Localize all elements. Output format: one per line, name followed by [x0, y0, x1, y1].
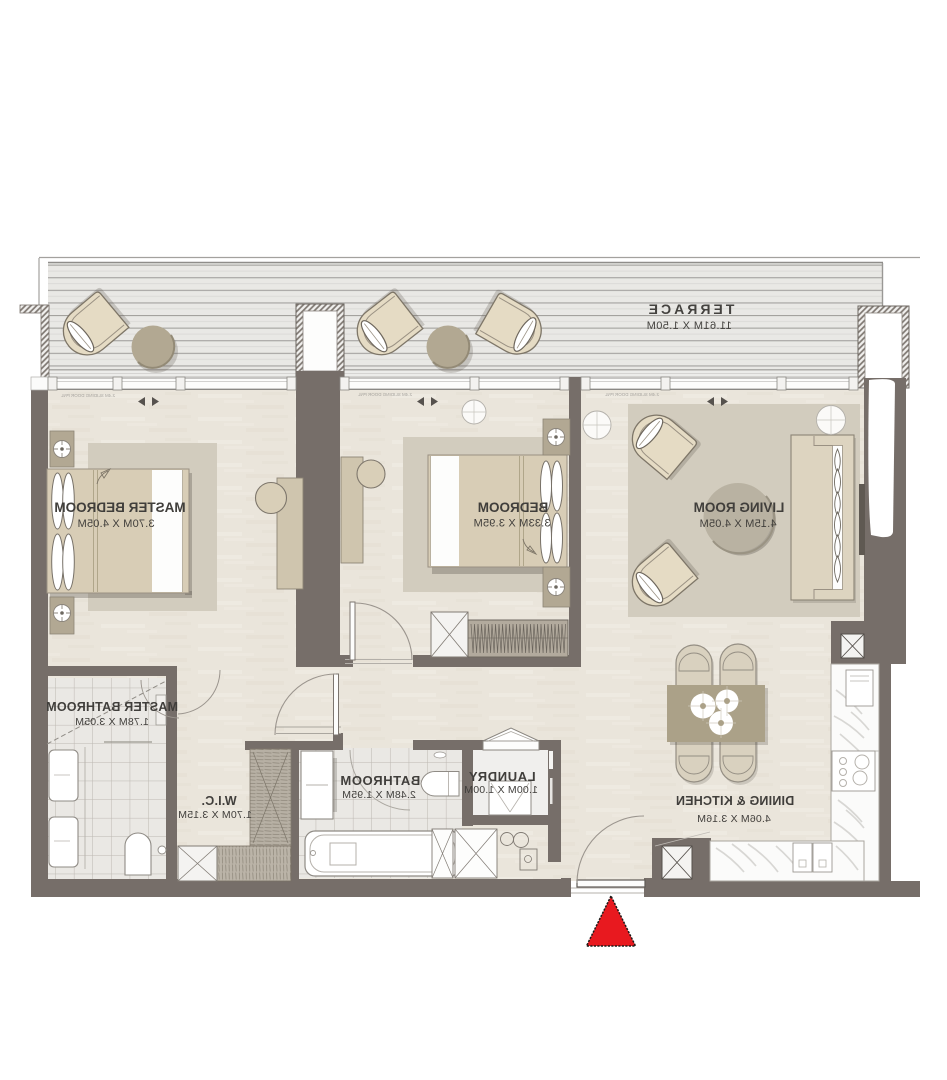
svg-text:DINING & KITCHEN: DINING & KITCHEN: [676, 794, 794, 808]
svg-text:1.78M X 3.05M: 1.78M X 3.05M: [75, 716, 149, 728]
svg-text:BEDROOM: BEDROOM: [478, 500, 549, 515]
svg-text:2.4M SLIDING DOOR PNL: 2.4M SLIDING DOOR PNL: [357, 392, 412, 397]
svg-text:4.15M X 4.05M: 4.15M X 4.05M: [699, 518, 776, 530]
svg-text:W.I.C.: W.I.C.: [201, 794, 236, 808]
svg-text:2.4M SLIDING DOOR PNL: 2.4M SLIDING DOOR PNL: [60, 393, 115, 398]
svg-text:4.06M X 3.16M: 4.06M X 3.16M: [697, 813, 771, 825]
svg-text:BATHROOM: BATHROOM: [340, 773, 420, 788]
svg-text:2.4M SLIDING DOOR PNL: 2.4M SLIDING DOOR PNL: [604, 392, 659, 397]
svg-text:LAUNDRY: LAUNDRY: [468, 769, 535, 784]
svg-text:1.70M X 3.15M: 1.70M X 3.15M: [178, 809, 252, 821]
svg-text:TERRACE: TERRACE: [646, 301, 735, 317]
svg-text:1.00M X 1.00M: 1.00M X 1.00M: [464, 784, 538, 796]
svg-text:11.61M X 1.50M: 11.61M X 1.50M: [646, 320, 732, 332]
svg-text:3.70M X 4.05M: 3.70M X 4.05M: [77, 518, 154, 530]
svg-text:2.48M X 1.95M: 2.48M X 1.95M: [342, 789, 416, 801]
svg-text:MASTER BATHROOM: MASTER BATHROOM: [46, 700, 178, 714]
svg-text:MASTER BEDROOM: MASTER BEDROOM: [54, 500, 185, 515]
svg-text:LIVING ROOM: LIVING ROOM: [694, 500, 785, 515]
svg-text:3.33M X 3.95M: 3.33M X 3.95M: [473, 518, 550, 530]
